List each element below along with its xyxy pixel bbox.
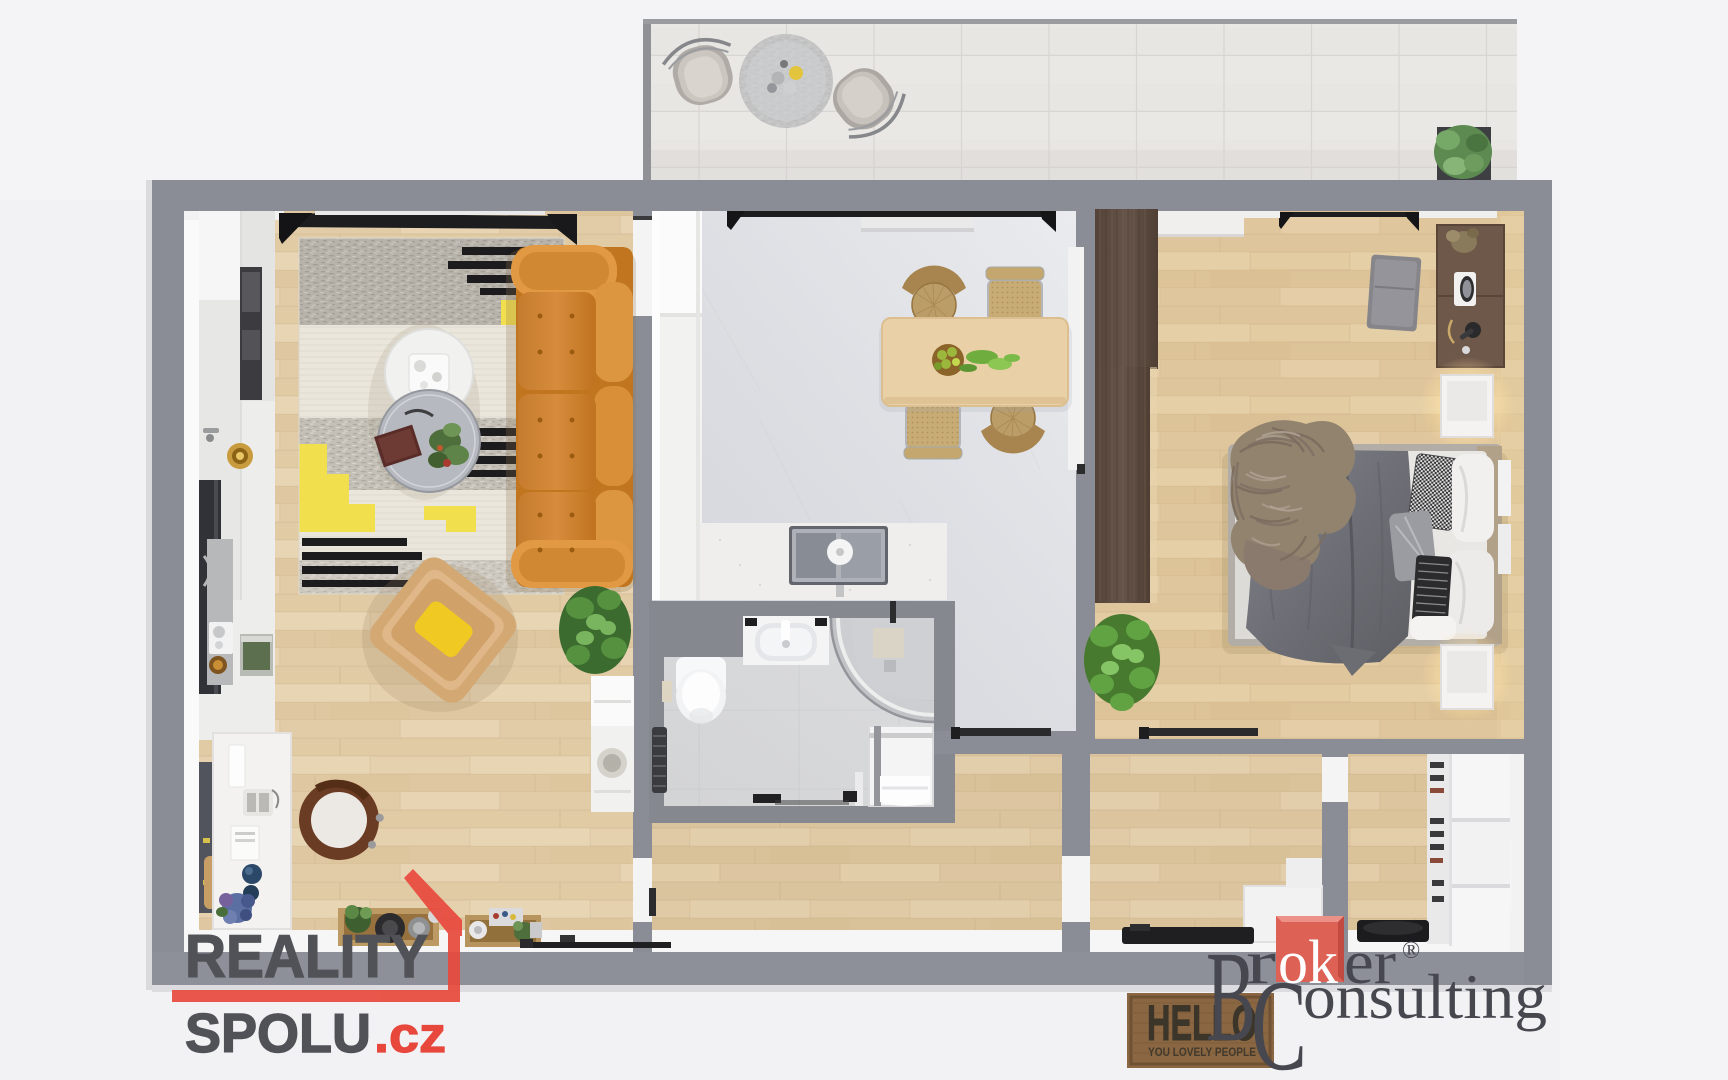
svg-text:C: C (1251, 954, 1307, 1080)
svg-text:REALITY: REALITY (185, 923, 428, 990)
svg-text:SPOLU: SPOLU (185, 1002, 371, 1064)
svg-text:onsulting: onsulting (1303, 961, 1547, 1032)
svg-text:.cz: .cz (374, 1007, 446, 1063)
